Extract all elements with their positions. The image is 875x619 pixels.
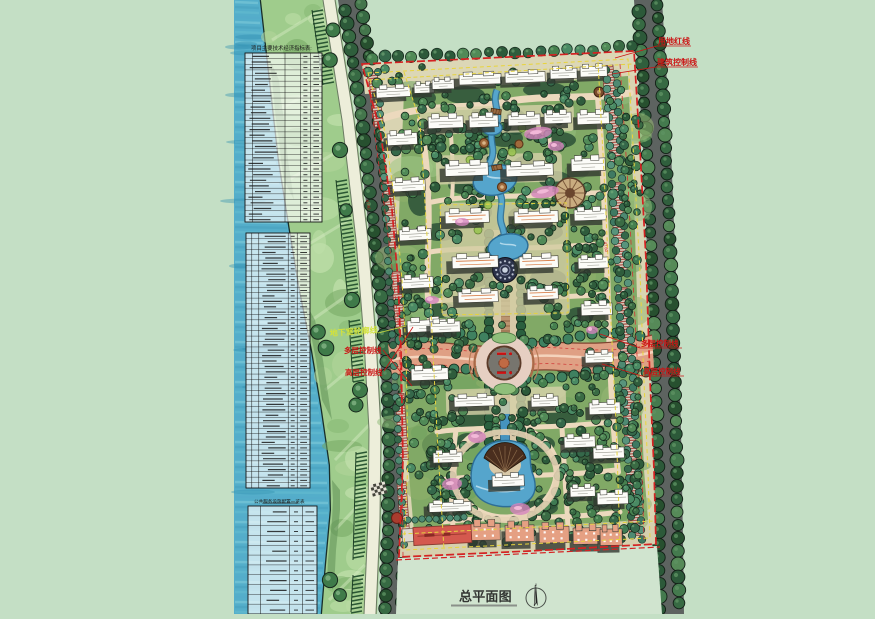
svg-text:多层控制线: 多层控制线 [344,345,382,355]
svg-text:高层控制线: 高层控制线 [345,367,383,377]
svg-text:公共服务设施配置一览表: 公共服务设施配置一览表 [254,498,305,505]
svg-text:多层控制线: 多层控制线 [641,338,679,348]
svg-text:高层控制线: 高层控制线 [643,366,681,376]
svg-text:项目主要技术经济指标表:: 项目主要技术经济指标表: [251,44,312,52]
svg-text:用地红线: 用地红线 [657,36,690,46]
svg-text:总平面图: 总平面图 [459,589,512,604]
svg-text:建筑控制线: 建筑控制线 [656,57,697,67]
